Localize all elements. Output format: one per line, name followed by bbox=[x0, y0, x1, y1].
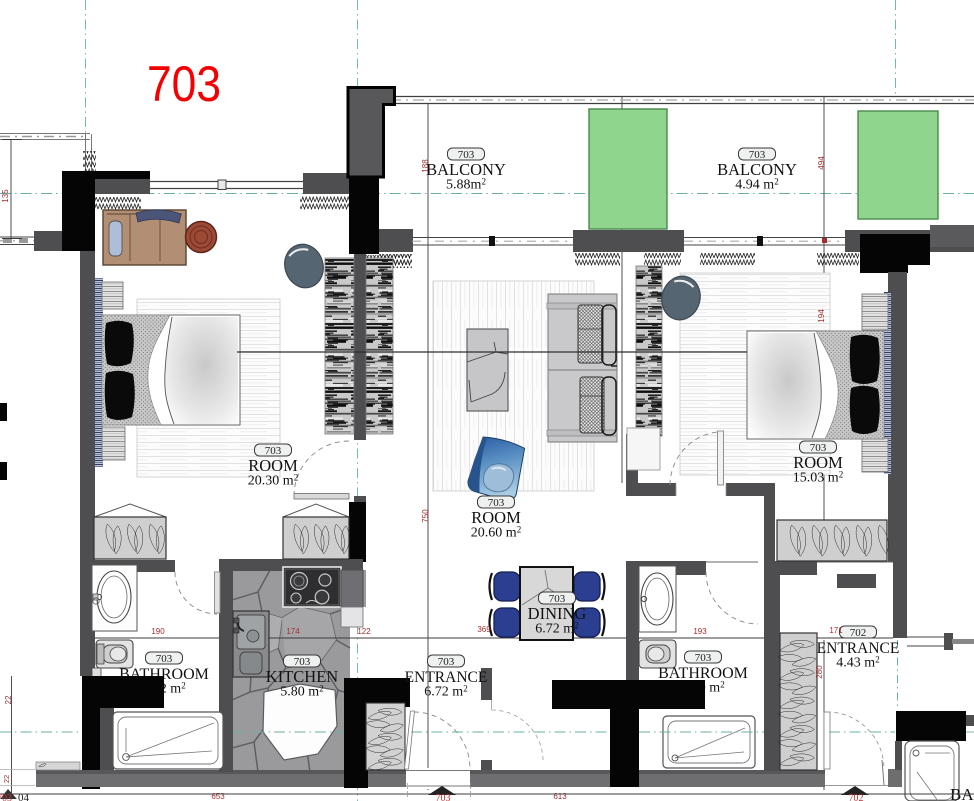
svg-text:22: 22 bbox=[2, 775, 11, 783]
svg-text:BA: BA bbox=[950, 785, 974, 801]
svg-text:174: 174 bbox=[286, 627, 300, 636]
svg-text:703: 703 bbox=[549, 593, 566, 605]
svg-text:4.94 m2: 4.94 m2 bbox=[735, 177, 778, 193]
svg-text:6.72 m2: 6.72 m2 bbox=[424, 684, 467, 700]
svg-text:703: 703 bbox=[488, 497, 505, 509]
svg-text:703: 703 bbox=[294, 656, 311, 668]
svg-text:04: 04 bbox=[18, 792, 30, 801]
svg-text:613: 613 bbox=[553, 792, 567, 801]
svg-text:750: 750 bbox=[421, 509, 430, 523]
svg-text:5.88m2: 5.88m2 bbox=[446, 177, 486, 193]
svg-text:122: 122 bbox=[357, 627, 371, 636]
svg-text:703: 703 bbox=[0, 793, 12, 801]
svg-text:703: 703 bbox=[438, 656, 455, 668]
svg-text:188: 188 bbox=[421, 159, 430, 173]
svg-text:703: 703 bbox=[458, 149, 475, 161]
svg-text:ROOM: ROOM bbox=[248, 456, 298, 475]
svg-text:BALCONY: BALCONY bbox=[426, 160, 506, 179]
svg-text:703: 703 bbox=[436, 793, 451, 801]
svg-text:ROOM: ROOM bbox=[793, 453, 843, 472]
svg-text:702: 702 bbox=[849, 793, 864, 801]
svg-text:ROOM: ROOM bbox=[471, 508, 521, 527]
svg-text:703: 703 bbox=[749, 149, 766, 161]
svg-text:653: 653 bbox=[211, 792, 225, 801]
svg-text:194: 194 bbox=[817, 309, 826, 323]
svg-text:703: 703 bbox=[156, 653, 173, 665]
svg-text:135: 135 bbox=[1, 189, 10, 203]
svg-text:6.72 m2: 6.72 m2 bbox=[535, 621, 578, 637]
svg-text:494: 494 bbox=[817, 156, 826, 170]
svg-text:15.03 m2: 15.03 m2 bbox=[793, 470, 843, 486]
svg-text:171: 171 bbox=[829, 626, 843, 635]
svg-text:280: 280 bbox=[815, 665, 824, 679]
svg-text:ENTRANCE: ENTRANCE bbox=[405, 669, 488, 686]
svg-text:BALCONY: BALCONY bbox=[717, 160, 797, 179]
svg-text:20.60 m2: 20.60 m2 bbox=[471, 525, 521, 541]
svg-text:703: 703 bbox=[147, 56, 221, 112]
svg-text:BATHROOM: BATHROOM bbox=[658, 665, 748, 682]
svg-text:ENTRANCE: ENTRANCE bbox=[817, 640, 900, 657]
svg-text:369: 369 bbox=[477, 625, 491, 634]
svg-text:KITCHEN: KITCHEN bbox=[266, 667, 338, 686]
svg-text:190: 190 bbox=[151, 627, 165, 636]
svg-text:193: 193 bbox=[693, 627, 707, 636]
svg-text:703: 703 bbox=[265, 445, 282, 457]
svg-text:4.43 m2: 4.43 m2 bbox=[836, 655, 879, 671]
svg-text:702: 702 bbox=[850, 627, 867, 639]
svg-text:5.80 m2: 5.80 m2 bbox=[280, 684, 323, 700]
svg-text:703: 703 bbox=[810, 442, 827, 454]
svg-text:703: 703 bbox=[695, 652, 712, 664]
svg-text:20.30 m2: 20.30 m2 bbox=[248, 473, 298, 489]
